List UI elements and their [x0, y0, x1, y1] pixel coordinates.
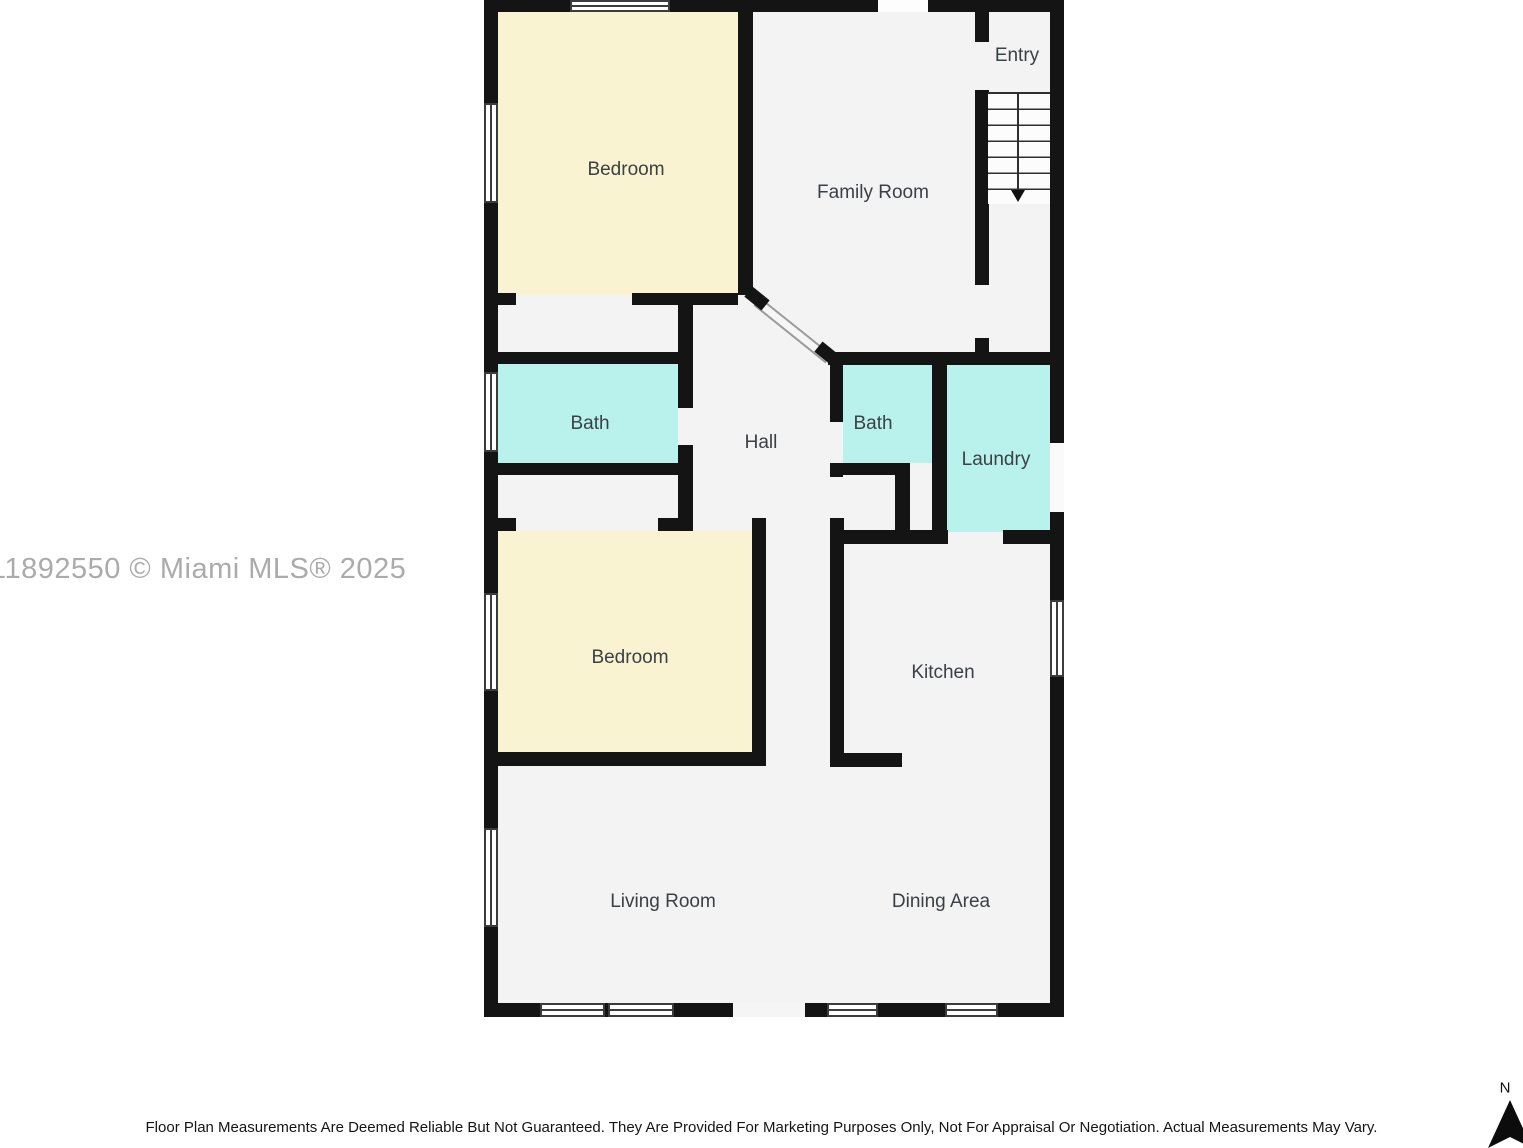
wall-bath2-laundry-divider	[932, 352, 947, 463]
room-bedroom-upper	[498, 10, 738, 295]
wall-bedroom2-top-stub-right	[658, 518, 693, 531]
label-bedroom-lower: Bedroom	[591, 647, 668, 669]
label-hall: Hall	[745, 432, 778, 454]
wall-kitchen-top	[830, 530, 948, 544]
room-bedroom-lower	[498, 531, 752, 752]
room-laundry	[947, 364, 1050, 532]
wall-bedroom1-right	[738, 10, 753, 295]
wall-bedroom2-bottom	[498, 752, 766, 766]
label-entry: Entry	[995, 45, 1039, 67]
stair-down-arrow-icon	[1011, 190, 1025, 202]
label-bath-left: Bath	[570, 413, 609, 435]
label-living-room: Living Room	[610, 891, 716, 913]
wall-bedroom1-bottom-stub	[498, 293, 516, 305]
wall-bedroom2-top-stub-left	[498, 518, 516, 531]
window-top-bedroom	[570, 0, 670, 12]
label-kitchen: Kitchen	[911, 662, 974, 684]
window-right-kitchen	[1050, 600, 1064, 677]
opening-bottom-center	[733, 1003, 805, 1017]
door-opening-laundry	[1050, 443, 1064, 512]
wall-bath2-left-upper	[830, 352, 843, 422]
window-bottom-dining-2	[945, 1003, 998, 1017]
label-bath-right: Bath	[853, 413, 892, 435]
label-dining-area: Dining Area	[892, 891, 990, 913]
opening-top	[878, 0, 928, 12]
window-left-bath	[484, 372, 498, 452]
label-family-room: Family Room	[817, 182, 929, 204]
window-bottom-living-1	[540, 1003, 605, 1017]
wall-entry-stub	[975, 10, 989, 42]
disclaimer-text: Floor Plan Measurements Are Deemed Relia…	[0, 1119, 1523, 1136]
wall-bath1-top	[498, 352, 693, 364]
wall-bath1-bottom	[498, 463, 693, 475]
window-left-bedroom2	[484, 593, 498, 691]
wall-stub	[975, 338, 989, 352]
window-bottom-dining-1	[827, 1003, 878, 1017]
window-left-bedroom1	[484, 103, 498, 203]
window-bottom-living-2	[608, 1003, 674, 1017]
wall-kitchen-left	[830, 518, 844, 767]
wall-bath2-bottom	[843, 463, 903, 475]
north-arrow-icon	[1488, 1100, 1523, 1148]
label-laundry: Laundry	[962, 449, 1031, 471]
floor-plan-page: { "watermark_text": "11892550 © Miami ML…	[0, 0, 1523, 1145]
wall-kitchen-bottom-stub	[830, 753, 902, 767]
label-bedroom-upper: Bedroom	[587, 159, 664, 181]
wall-laundry-bottom	[1003, 530, 1050, 544]
window-left-living	[484, 828, 498, 927]
wall-bath2-left-stub	[830, 463, 843, 477]
wall-hall-left-upper	[678, 293, 693, 408]
stair-direction-line	[1017, 94, 1019, 192]
mls-watermark: 11892550 © Miami MLS® 2025	[0, 553, 406, 586]
wall-stair-left	[975, 90, 989, 285]
wall-bedroom2-right	[752, 518, 766, 766]
staircase	[988, 92, 1050, 204]
north-label: N	[1500, 1080, 1511, 1097]
